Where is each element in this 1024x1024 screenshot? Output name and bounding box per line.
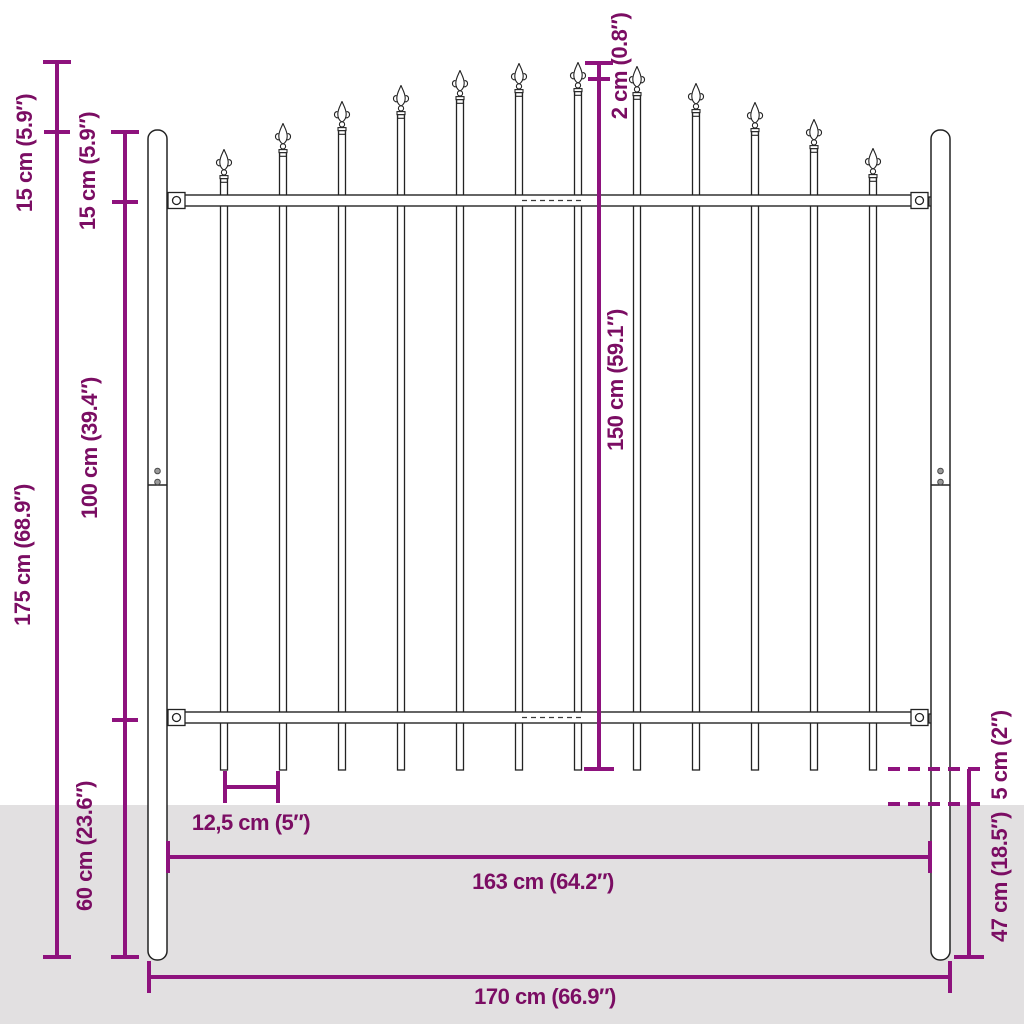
spear-finial-icon: [570, 63, 585, 96]
picket-shaft: [280, 154, 287, 770]
spear-finial-icon: [747, 103, 762, 136]
picket-shaft: [693, 114, 700, 770]
spear-finial-icon: [865, 149, 880, 182]
spear-finial-icon: [216, 150, 231, 183]
spear-finial-icon: [452, 71, 467, 104]
dim-label-peak-offset: 2 cm (0.8″): [607, 13, 633, 120]
dim-label-panel-width: 163 cm (64.2″): [472, 869, 614, 895]
dim-label-total-width: 170 cm (66.9″): [474, 984, 616, 1010]
picket-shaft: [516, 94, 523, 770]
spear-finial-icon: [275, 124, 290, 157]
diagram-canvas: 15 cm (5.9″) 15 cm (5.9″) 175 cm (68.9″)…: [0, 0, 1024, 1024]
pickets: [216, 63, 880, 771]
picket-shaft: [811, 150, 818, 770]
picket-shaft: [398, 116, 405, 770]
spear-finial-icon: [806, 120, 821, 153]
dim-label-total-height: 175 cm (68.9″): [10, 484, 36, 626]
dim-label-post-above-rail: 15 cm (5.9″): [75, 112, 101, 230]
dim-label-rail-spacing: 100 cm (39.4″): [77, 377, 103, 519]
picket-shaft: [457, 101, 464, 770]
dim-label-panel-height: 150 cm (59.1″): [603, 309, 629, 451]
dim-label-above-ground: 5 cm (2″): [987, 710, 1013, 799]
picket-shaft: [870, 179, 877, 770]
picket-shaft: [634, 97, 641, 770]
spear-finial-icon: [334, 102, 349, 135]
spear-finial-icon: [393, 86, 408, 119]
rails: [184, 195, 913, 723]
dim-line-picket-spacing: [225, 771, 278, 803]
dim-label-post-below-rail: 60 cm (23.6″): [72, 781, 98, 911]
spear-finial-icon: [688, 84, 703, 117]
dim-label-arch-rise: 15 cm (5.9″): [12, 94, 38, 212]
spear-finial-icon: [511, 64, 526, 97]
dim-label-picket-spacing: 12,5 cm (5″): [192, 810, 310, 836]
picket-shaft: [752, 133, 759, 770]
dim-label-buried-depth: 47 cm (18.5″): [987, 812, 1013, 942]
top-rail: [184, 195, 913, 206]
rail-brackets: [150, 193, 949, 726]
rail-seams: [522, 201, 585, 718]
picket-shaft: [339, 132, 346, 770]
picket-shaft: [221, 180, 228, 770]
bottom-rail: [184, 712, 913, 723]
picket-shaft: [575, 93, 582, 770]
